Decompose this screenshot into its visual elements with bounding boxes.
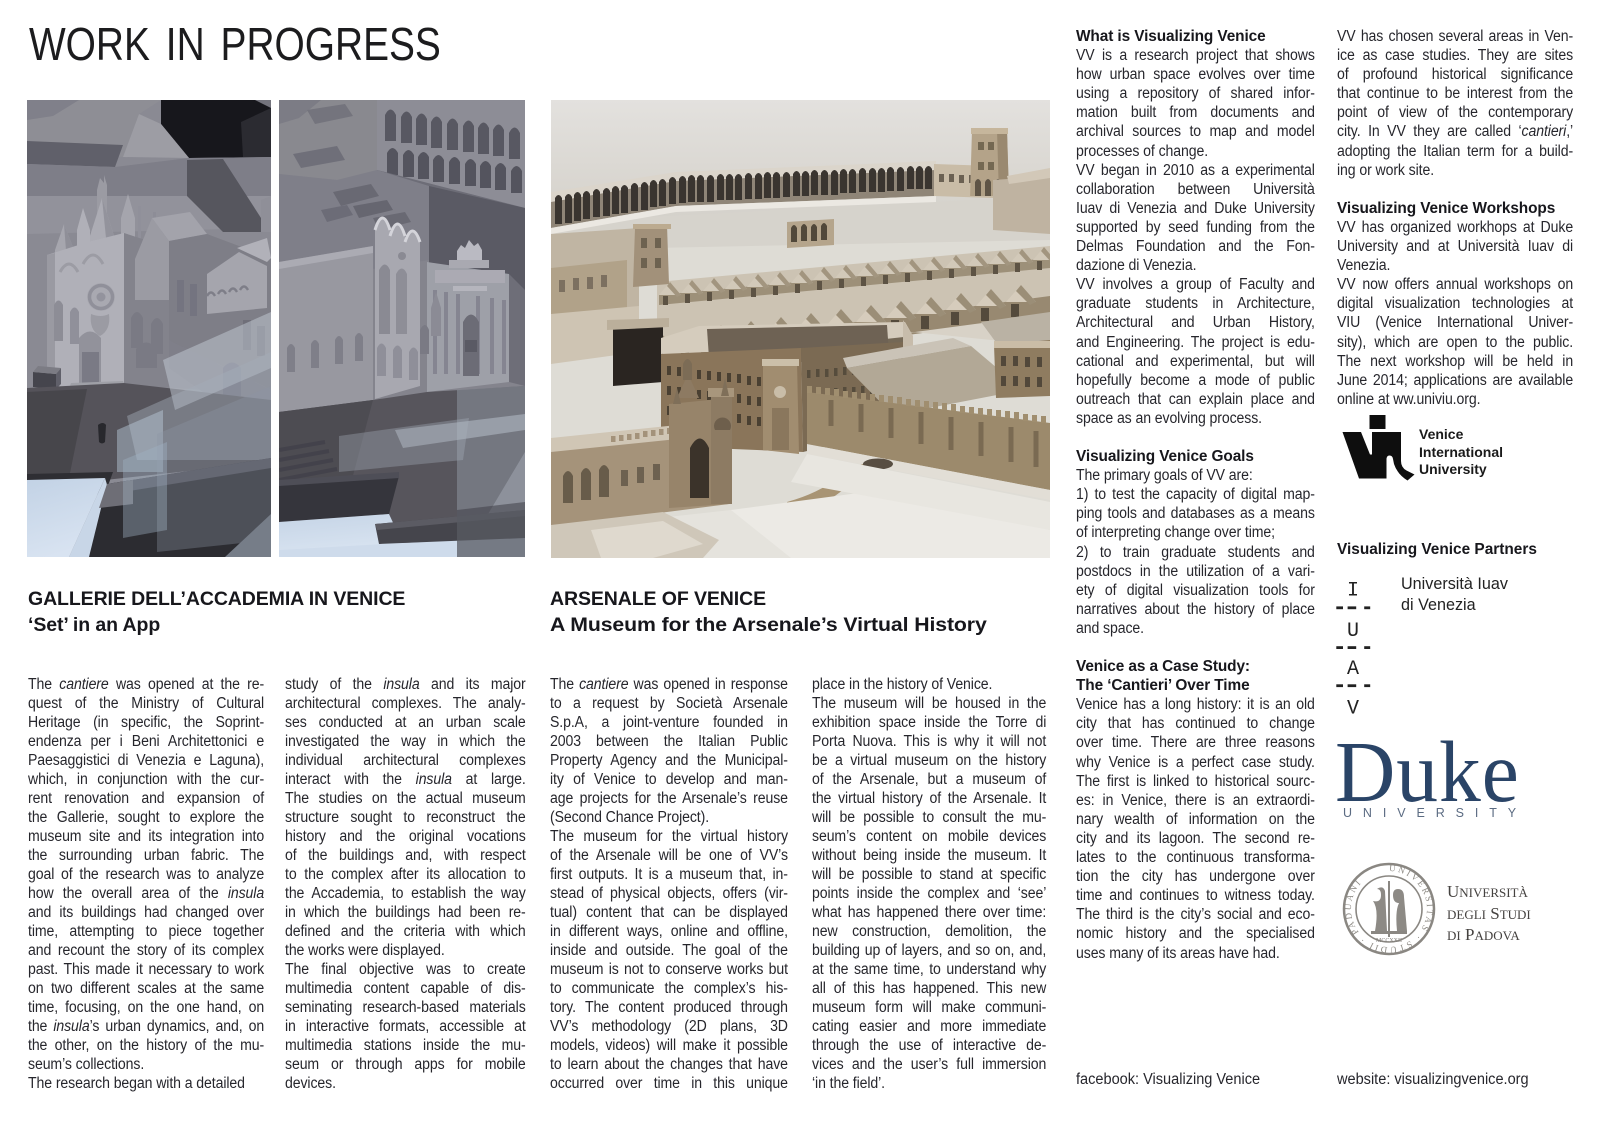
svg-text:V: V [1347,698,1359,718]
svg-text:I: I [1347,580,1359,603]
svg-text:U: U [1347,620,1359,643]
svg-text:A: A [1347,658,1359,681]
svg-text:MCCXXII: MCCXXII [1376,938,1402,944]
